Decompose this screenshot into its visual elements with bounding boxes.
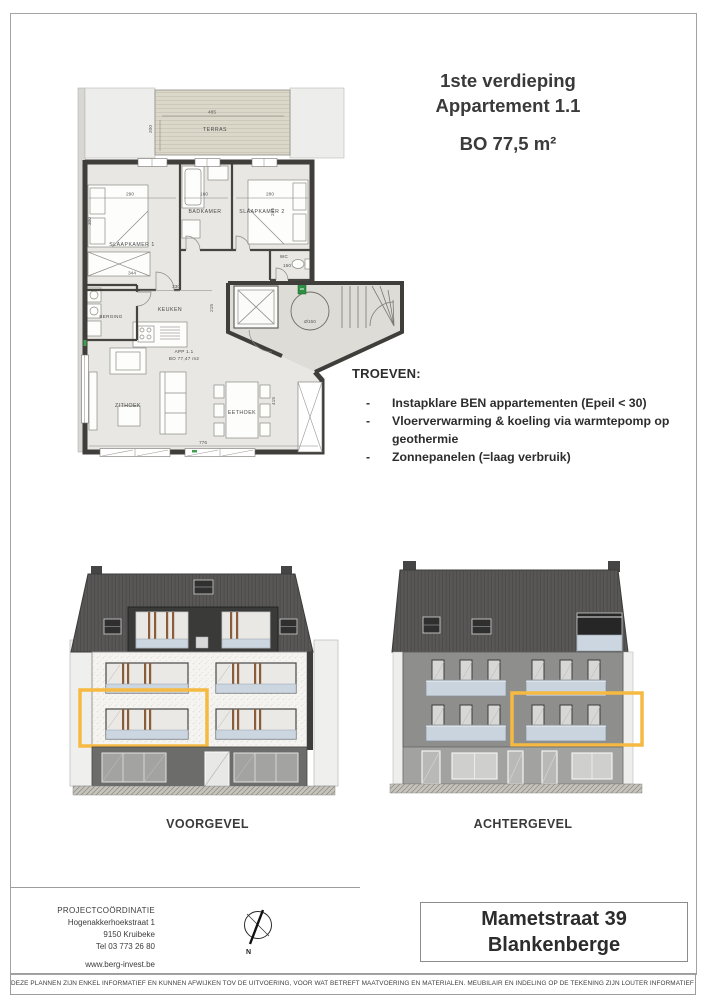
vent-marker xyxy=(192,450,197,453)
room-label-slaapkamer1: SLAAPKAMER 1 xyxy=(109,242,155,248)
room-label-zithoek: ZITHOEK xyxy=(115,403,141,409)
dim-keuken-depth: 215 xyxy=(209,304,215,312)
area-label: BO 77,5 m² xyxy=(378,131,638,156)
dim-living-width: 776 xyxy=(199,440,207,446)
troeven-heading: TROEVEN: xyxy=(352,366,697,381)
project-city: Blankenberge xyxy=(488,932,620,958)
footer-divider xyxy=(10,887,360,888)
title-block: 1ste verdieping Appartement 1.1 BO 77,5 … xyxy=(378,68,638,156)
bullet-dash: - xyxy=(352,412,392,448)
rear-elevation-drawing xyxy=(386,553,670,799)
ground-line xyxy=(390,784,642,793)
dim-keuken-width: 330 xyxy=(172,284,180,290)
dim-wc-width: 150 xyxy=(283,263,291,269)
front-elevation-label: VOORGEVEL xyxy=(140,817,275,831)
apartment-title: Appartement 1.1 xyxy=(378,93,638,118)
dim-sk1-closet: 344 xyxy=(128,271,136,277)
coordination-block: PROJECTCOÖRDINATIE Hogenakkerhoekstraat … xyxy=(28,905,155,971)
troeven-item: - Zonnepanelen (=laag verbruik) xyxy=(352,448,697,466)
troeven-item-text: Zonnepanelen (=laag verbruik) xyxy=(392,448,571,466)
coordination-city: 9150 Kruibeke xyxy=(28,929,155,941)
troeven-section: TROEVEN: - Instapklare BEN appartementen… xyxy=(352,366,697,466)
front-elevation-drawing xyxy=(66,560,342,800)
room-label-wc: WC xyxy=(280,254,289,259)
plan-sheet: 1ste verdieping Appartement 1.1 BO 77,5 … xyxy=(0,0,707,1000)
room-label-slaapkamer2: SLAAPKAMER 2 xyxy=(239,209,285,215)
dim-terras-depth: 200 xyxy=(148,125,154,133)
room-label-berging: BERGING xyxy=(99,314,122,319)
coordination-website: www.berg-invest.be xyxy=(28,959,155,971)
apartment-id-label: APP 1.1 xyxy=(175,349,194,354)
floor-title: 1ste verdieping xyxy=(378,68,638,93)
troeven-item-text: Instapklare BEN appartementen (Epeil < 3… xyxy=(392,394,647,412)
dim-badkamer-width: 160 xyxy=(200,192,208,198)
project-address-box: Mametstraat 39 Blankenberge xyxy=(420,902,688,962)
room-label-keuken: KEUKEN xyxy=(158,307,182,313)
dormer xyxy=(128,607,278,652)
ground-floor xyxy=(403,747,623,784)
dim-sk2-width: 280 xyxy=(266,192,274,198)
project-street: Mametstraat 39 xyxy=(481,906,627,932)
troeven-item-text: Vloerverwarming & koeling via warmtepomp… xyxy=(392,412,687,448)
vent-marker xyxy=(84,340,87,346)
apartment-area-label: BO 77,47 m2 xyxy=(169,356,200,361)
roof-terrace xyxy=(577,613,622,652)
compass-rose-icon: N xyxy=(236,906,280,958)
room-label-terras: TERRAS xyxy=(203,127,227,133)
disclaimer-bar: DEZE PLANNEN ZIJN ENKEL INFORMATIEF EN K… xyxy=(10,973,696,995)
troeven-item: - Vloerverwarming & koeling via warmtepo… xyxy=(352,412,697,448)
room-label-eethoek: EETHOEK xyxy=(228,410,256,416)
dim-terras-width: 485 xyxy=(208,110,216,116)
dim-sk1-width: 290 xyxy=(126,192,134,198)
room-label-badkamer: BADKAMER xyxy=(188,209,221,215)
rear-elevation-label: ACHTERGEVEL xyxy=(448,817,598,831)
adjacent-roof-left xyxy=(85,88,155,158)
bullet-dash: - xyxy=(352,448,392,466)
dim-living-depth: 415 xyxy=(271,397,277,405)
coordination-street: Hogenakkerhoekstraat 1 xyxy=(28,917,155,929)
dim-shaft: Ø150 xyxy=(304,319,316,325)
bullet-dash: - xyxy=(352,394,392,412)
ground-line xyxy=(73,786,335,795)
coordination-phone: Tel 03 773 26 80 xyxy=(28,941,155,953)
dim-sk1-depth: 300 xyxy=(87,217,93,225)
ground-floor xyxy=(92,747,307,786)
troeven-item: - Instapklare BEN appartementen (Epeil <… xyxy=(352,394,697,412)
coordination-title: PROJECTCOÖRDINATIE xyxy=(28,905,155,917)
compass-north-label: N xyxy=(246,949,251,956)
adjacent-roof-right xyxy=(290,88,344,158)
terrace: 485 200 TERRAS xyxy=(148,90,290,155)
